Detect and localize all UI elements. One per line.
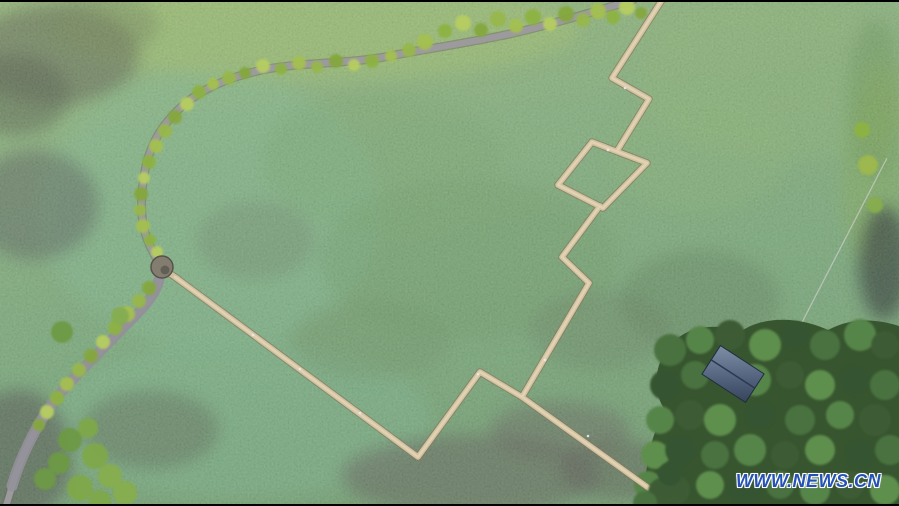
news-agency-watermark: WWW.NEWS.CN xyxy=(736,471,881,492)
photo-canvas xyxy=(0,0,899,506)
pavilion xyxy=(151,256,173,278)
aerial-photo-lotus-pond: WWW.NEWS.CN xyxy=(0,0,899,506)
letterbox-top-bar xyxy=(0,0,899,2)
pavilion-roof-shadow xyxy=(161,266,170,275)
